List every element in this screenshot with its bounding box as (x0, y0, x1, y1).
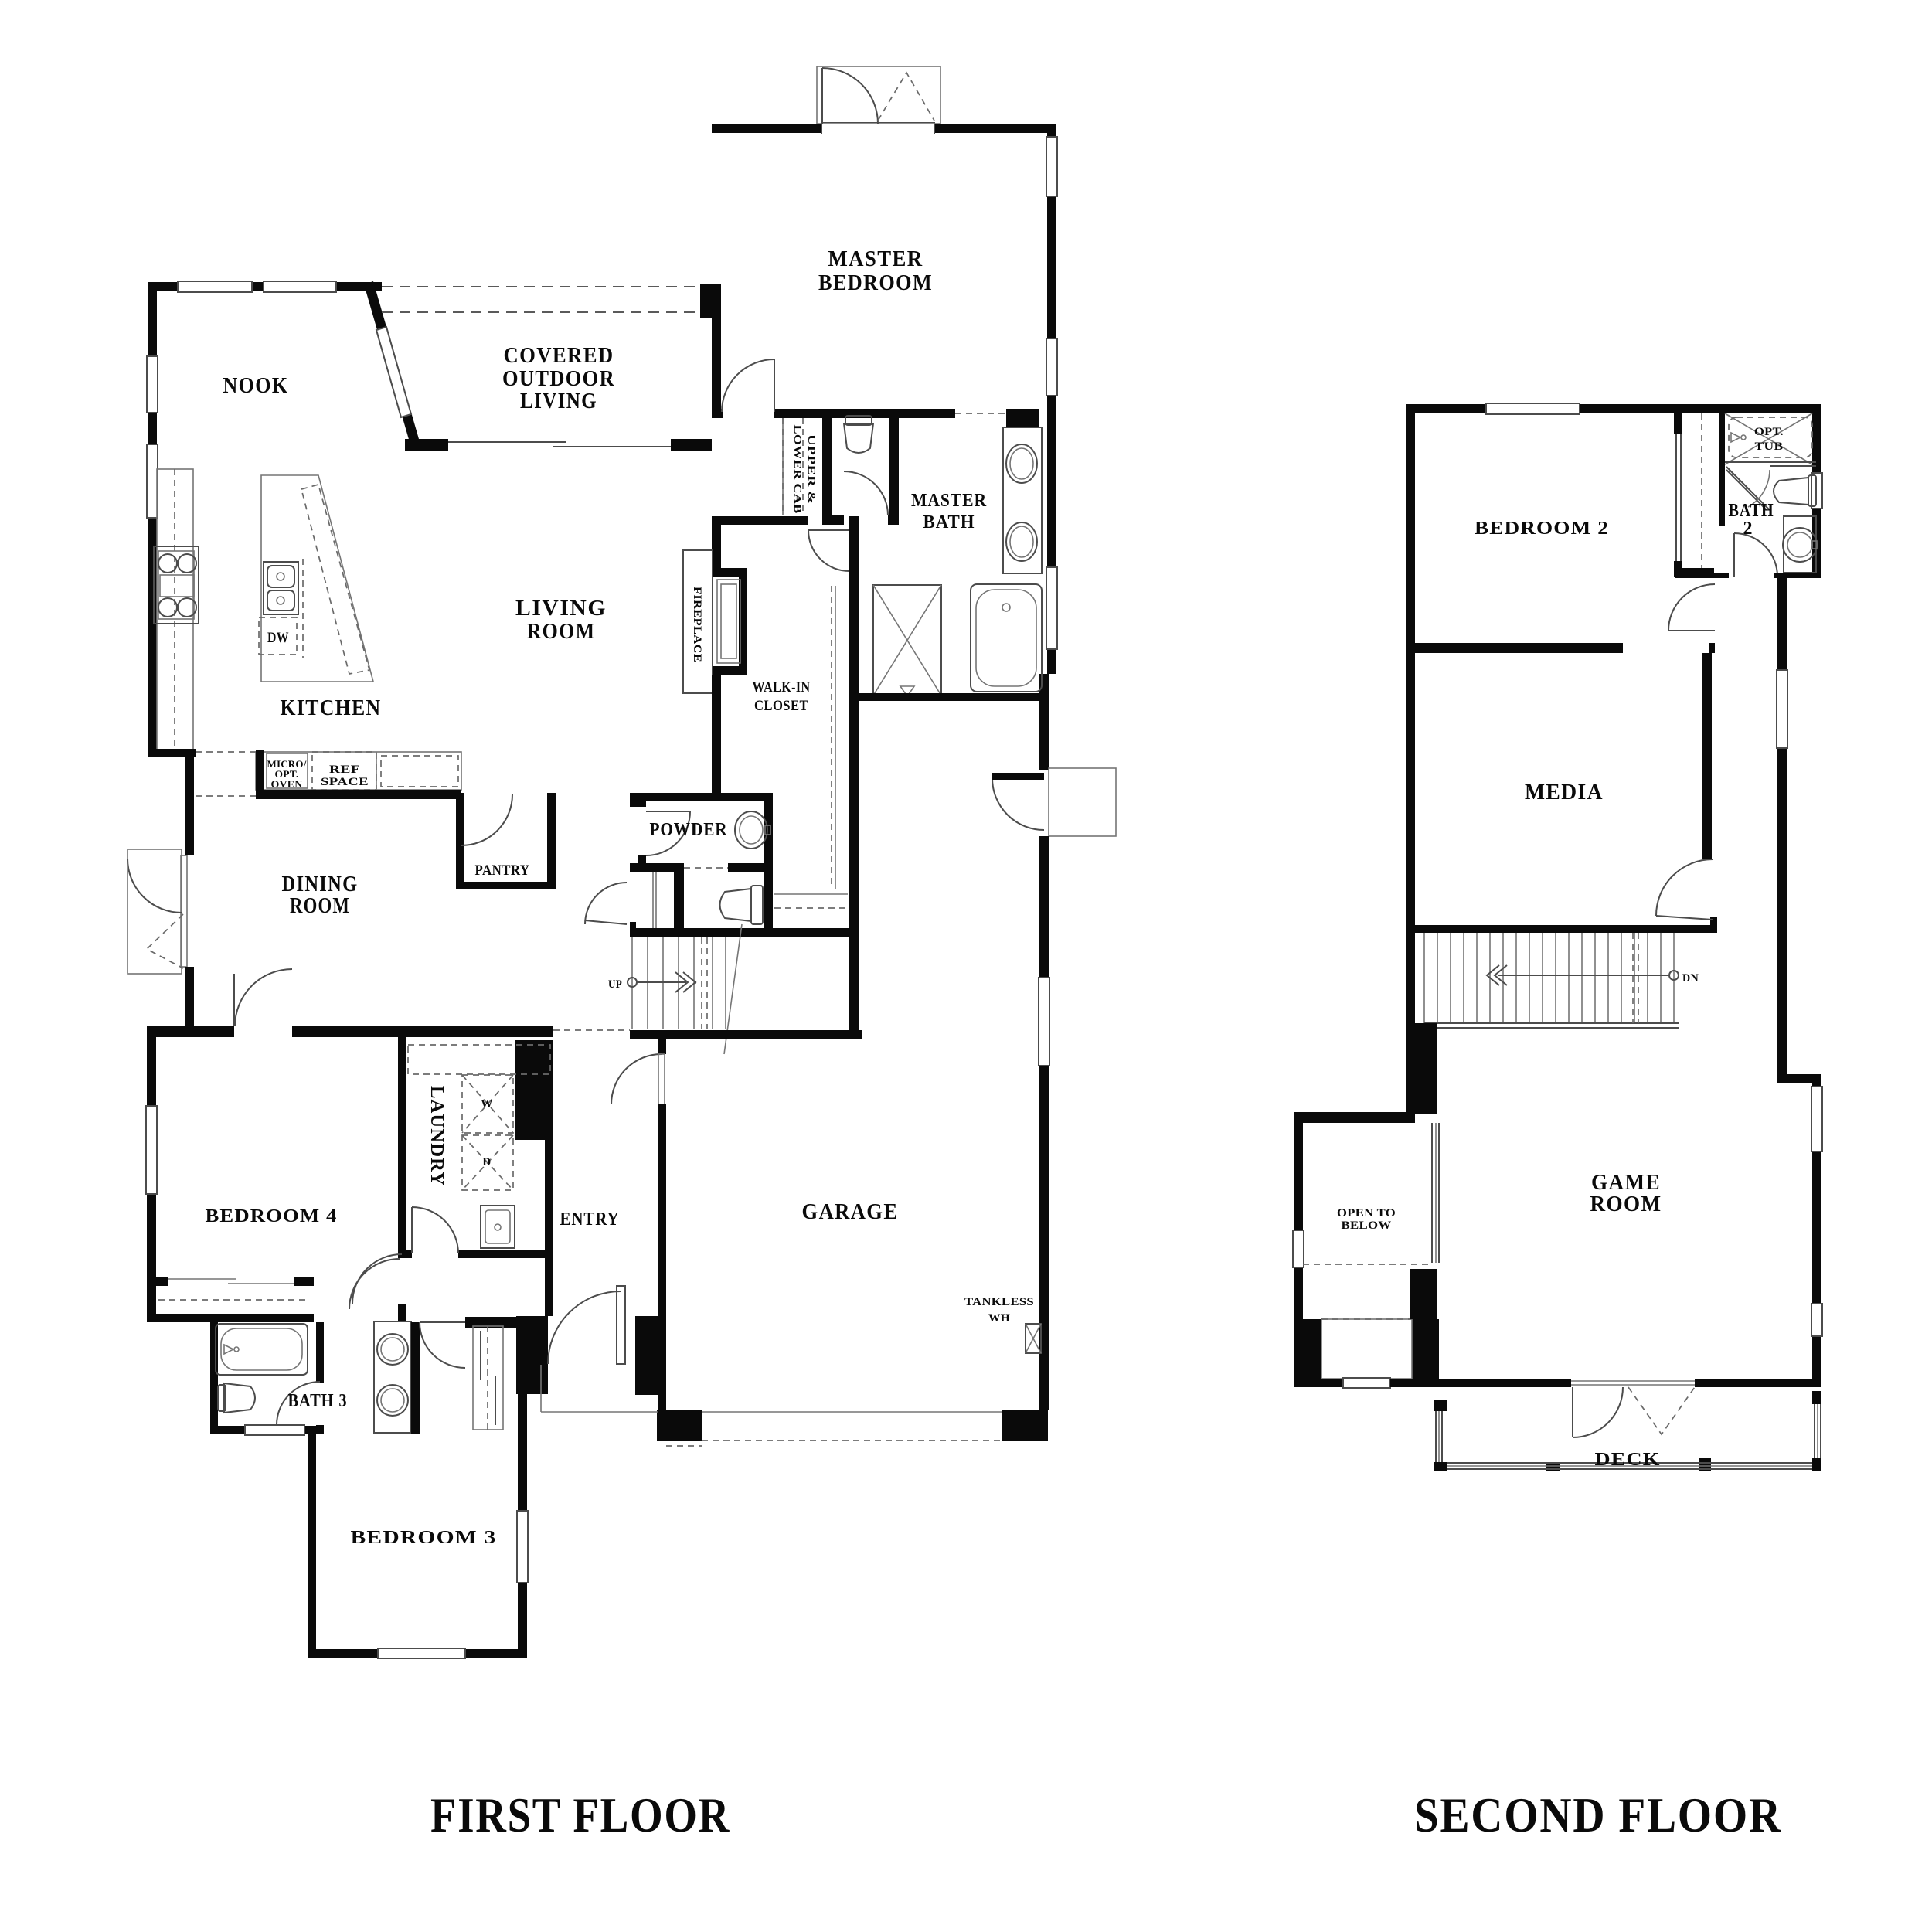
svg-text:KITCHEN: KITCHEN (281, 696, 382, 720)
svg-text:LIVING: LIVING (515, 596, 607, 621)
svg-text:ROOM: ROOM (1590, 1192, 1662, 1216)
svg-text:BEDROOM 3: BEDROOM 3 (351, 1528, 497, 1548)
svg-text:MASTER: MASTER (828, 247, 923, 271)
svg-text:PANTRY: PANTRY (475, 862, 530, 879)
svg-text:DECK: DECK (1595, 1450, 1661, 1470)
svg-text:WALK-IN: WALK-IN (753, 679, 811, 696)
svg-text:FIRST FLOOR: FIRST FLOOR (430, 1787, 730, 1842)
svg-text:BATH: BATH (923, 512, 975, 532)
svg-text:OUTDOOR: OUTDOOR (502, 366, 615, 391)
svg-text:SECOND FLOOR: SECOND FLOOR (1414, 1787, 1782, 1842)
svg-text:SPACE: SPACE (321, 776, 369, 788)
svg-text:TANKLESS: TANKLESS (964, 1296, 1034, 1308)
svg-text:TUB: TUB (1755, 440, 1784, 453)
svg-text:UPPER &: UPPER & (806, 434, 818, 504)
svg-text:W: W (481, 1098, 492, 1111)
svg-text:D: D (482, 1156, 491, 1168)
svg-text:DN: DN (1682, 972, 1699, 985)
svg-text:NOOK: NOOK (223, 373, 289, 398)
svg-text:BEDROOM 4: BEDROOM 4 (206, 1206, 338, 1226)
svg-text:MEDIA: MEDIA (1525, 780, 1604, 804)
svg-text:DW: DW (267, 630, 289, 646)
svg-text:FIREPLACE: FIREPLACE (691, 587, 703, 662)
svg-text:UP: UP (608, 978, 622, 991)
svg-text:OVEN: OVEN (271, 778, 303, 790)
svg-text:POWDER: POWDER (650, 820, 728, 840)
svg-text:WH: WH (988, 1312, 1010, 1325)
svg-text:BELOW: BELOW (1342, 1219, 1392, 1232)
svg-text:2: 2 (1743, 519, 1753, 539)
svg-text:BATH 3: BATH 3 (288, 1391, 348, 1411)
svg-text:BEDROOM: BEDROOM (818, 270, 933, 295)
svg-text:MASTER: MASTER (911, 491, 987, 511)
svg-text:ROOM: ROOM (527, 619, 596, 644)
svg-text:REF: REF (329, 764, 360, 776)
svg-text:ENTRY: ENTRY (560, 1209, 620, 1230)
svg-text:OPEN TO: OPEN TO (1337, 1207, 1396, 1219)
svg-text:ROOM: ROOM (290, 893, 350, 918)
svg-text:CLOSET: CLOSET (754, 698, 808, 714)
svg-text:BEDROOM 2: BEDROOM 2 (1475, 519, 1609, 539)
svg-text:LAUNDRY: LAUNDRY (427, 1086, 447, 1186)
svg-text:LOWER CAB: LOWER CAB (792, 425, 804, 514)
svg-text:COVERED: COVERED (504, 343, 614, 368)
svg-text:LIVING: LIVING (520, 389, 597, 413)
svg-text:GARAGE: GARAGE (802, 1199, 899, 1224)
svg-text:OPT.: OPT. (1754, 426, 1784, 438)
